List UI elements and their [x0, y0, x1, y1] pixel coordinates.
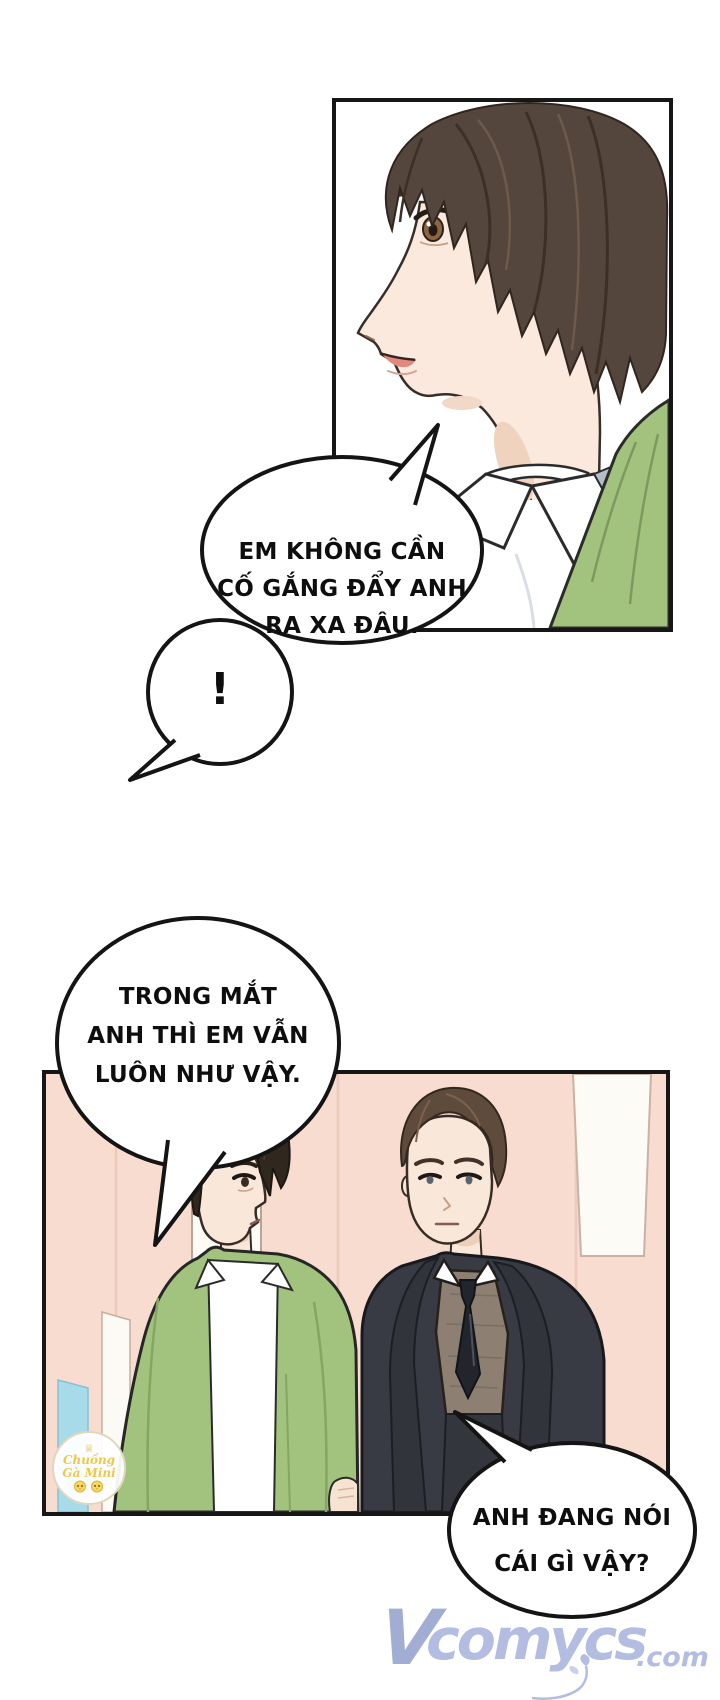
- door-frame-right: [573, 1074, 651, 1256]
- exclamation-bubble-text: !: [185, 668, 255, 712]
- watermark-suffix: .com: [636, 1642, 709, 1673]
- speech-bubble-3-text: ANH ĐANG NÓI CÁI GÌ VẬY?: [452, 1495, 692, 1587]
- comic-page: EM KHÔNG CẦN CỐ GẮNG ĐẨY ANH RA XA ĐÂU. …: [0, 0, 720, 1700]
- watermark-flower-icon: [528, 1654, 598, 1700]
- speech-bubble-2-text: TRONG MẮT ANH THÌ EM VẪN LUÔN NHƯ VẬY.: [58, 978, 338, 1095]
- speech-bubble-1-text: EM KHÔNG CẦN CỐ GẮNG ĐẨY ANH RA XA ĐÂU.: [202, 534, 482, 645]
- stamp-chicks-icon: [72, 1480, 106, 1493]
- stamp-title-line2: Gà Mini: [62, 1467, 115, 1480]
- translator-stamp: ♕ Chuồng Gà Mini: [52, 1431, 126, 1505]
